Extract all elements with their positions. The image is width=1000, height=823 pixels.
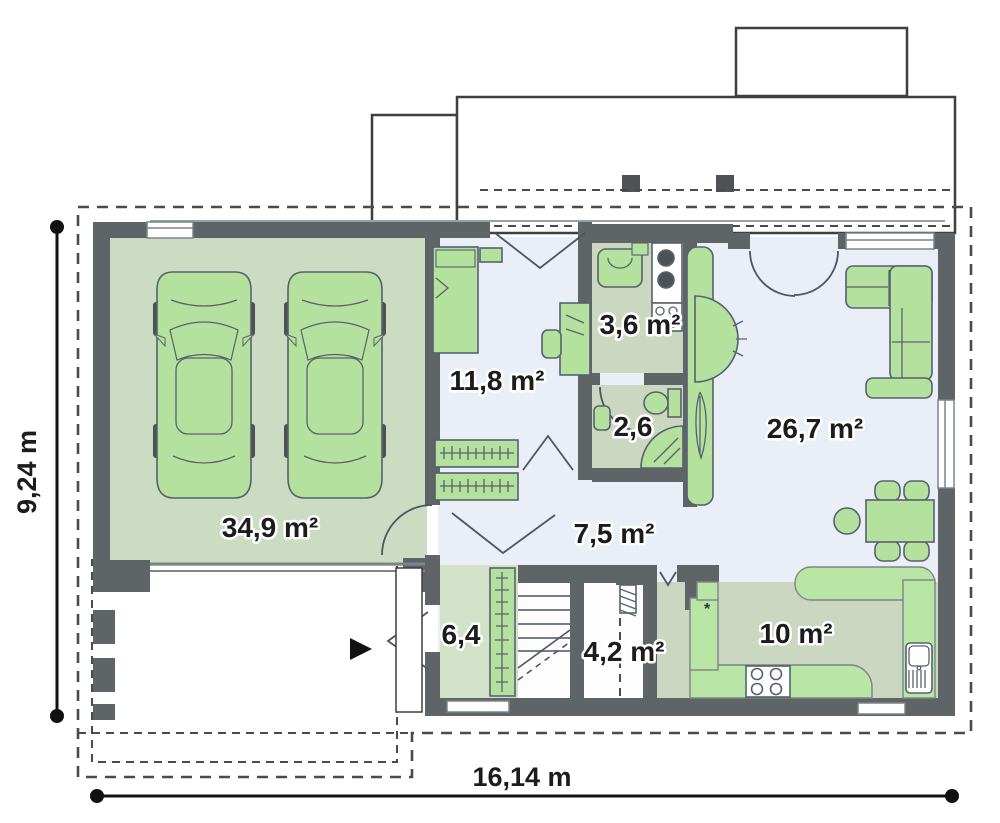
dimension-bottom: 16,14 m (90, 762, 959, 803)
carport-post-1 (93, 610, 115, 644)
floor-plan-page: * 34,9 m² 11,8 m² 3,6 m² 2,6 26,7 m² 7,5… (0, 0, 1000, 823)
wardrobe-2-icon (435, 473, 518, 500)
hob-star-mark: * (704, 601, 711, 618)
upper-floor-outline-top-right (736, 28, 907, 96)
room-label-wc: 2,6 (614, 411, 653, 442)
sink-icon (906, 643, 932, 693)
width-dimension-label: 16,14 m (472, 762, 571, 792)
car-1-icon (153, 272, 255, 498)
room-label-vestibule: 6,4 (442, 619, 481, 650)
stairs-floor (518, 583, 570, 698)
dimension-left: 9,24 m (12, 220, 64, 723)
garage-door (150, 564, 425, 571)
height-dimension-label: 9,24 m (12, 430, 42, 514)
porch-outline-left (372, 115, 457, 225)
wc-sink-icon (594, 406, 610, 430)
kitchen-window (858, 703, 905, 714)
bed-pillow (436, 250, 475, 267)
vestibule-wardrobe-icon (490, 568, 515, 696)
wardrobe-1-icon (435, 440, 518, 467)
room-label-garage: 34,9 m² (222, 512, 319, 543)
entrance-porch (396, 568, 422, 712)
carport-post-2 (93, 658, 115, 692)
desk-icon (560, 303, 590, 375)
living-right-window (938, 400, 954, 488)
room-label-hall: 7,5 m² (574, 518, 655, 549)
upper-floor-outlines (372, 28, 955, 233)
nightstand-icon (480, 248, 502, 262)
car-2-icon (284, 272, 386, 498)
vestibule-window (447, 701, 509, 712)
entrance-arrow-icon (350, 638, 372, 660)
floor-plan-drawing: * 34,9 m² 11,8 m² 3,6 m² 2,6 26,7 m² 7,5… (0, 0, 1000, 823)
room-label-storage: 4,2 m² (584, 636, 665, 667)
room-label-kitchen: 10 m² (759, 618, 832, 649)
room-label-living: 26,7 m² (767, 413, 864, 444)
room-label-utility: 3,6 m² (600, 309, 681, 340)
desk-chair-icon (542, 330, 561, 358)
stove-icon (746, 666, 790, 697)
garage-window (147, 222, 193, 238)
room-label-office: 11,8 m² (450, 365, 545, 396)
upper-floor-outline-center (457, 97, 955, 233)
carport-post-3 (93, 704, 115, 720)
living-top-window (846, 233, 934, 249)
